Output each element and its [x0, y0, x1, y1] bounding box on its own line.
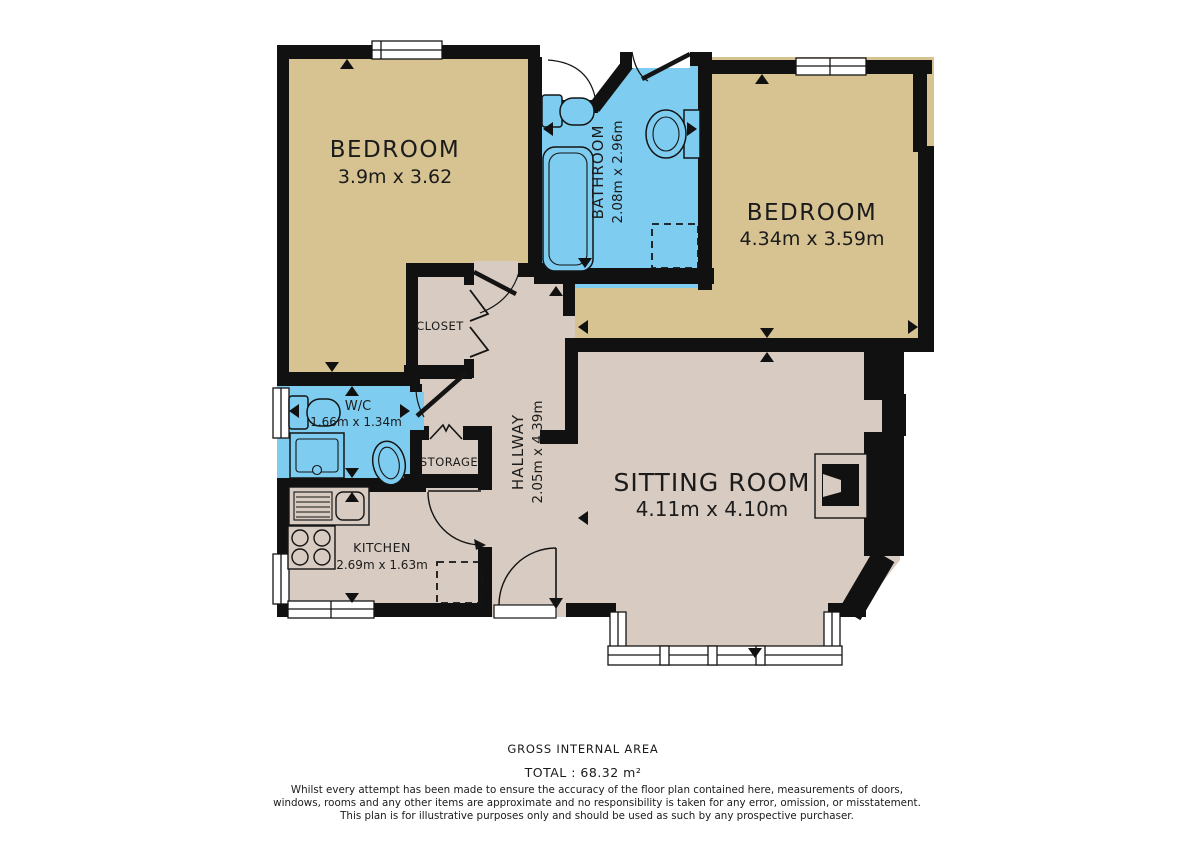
bedroom-1-dims: 3.9m x 3.62: [338, 166, 452, 188]
disclaimer-line-2: windows, rooms and any other items are a…: [273, 797, 921, 809]
sitting-room-label: SITTING ROOM: [613, 468, 810, 497]
bedroom-1-label: BEDROOM: [330, 137, 461, 163]
sitting-room-dims: 4.11m x 4.10m: [636, 497, 789, 521]
stove: [288, 526, 335, 569]
shower: [290, 433, 344, 478]
toilet: [542, 95, 594, 127]
footer: GROSS INTERNAL AREA TOTAL : 68.32 m² Whi…: [273, 742, 921, 822]
fireplace: [815, 454, 867, 518]
disclaimer-line-3: This plan is for illustrative purposes o…: [339, 810, 854, 822]
wc-label: W/C: [345, 399, 371, 414]
total-area: TOTAL : 68.32 m²: [524, 765, 642, 780]
gross-internal-area-label: GROSS INTERNAL AREA: [507, 742, 658, 756]
kitchen-label: KITCHEN: [353, 540, 411, 555]
bedroom-2-label: BEDROOM: [747, 200, 878, 226]
basin: [646, 110, 700, 158]
bathroom-dims: 2.08m x 2.96m: [610, 121, 626, 224]
bedroom-2-dims: 4.34m x 3.59m: [740, 228, 885, 250]
bathtub: [543, 147, 593, 271]
floorplan-page: BEDROOM 3.9m x 3.62 BATHROOM 2.08m x 2.9…: [0, 0, 1200, 848]
disclaimer-line-1: Whilst every attempt has been made to en…: [291, 784, 903, 796]
kitchen-counter: [289, 487, 369, 525]
kitchen-dims: 2.69m x 1.63m: [336, 558, 428, 572]
threshold: [494, 605, 556, 618]
closet-label: CLOSET: [416, 319, 464, 333]
wc-dims: 1.66m x 1.34m: [310, 415, 402, 429]
storage-label: STORAGE: [420, 455, 478, 469]
kitchen-side-window: [273, 554, 289, 604]
bathroom-label: BATHROOM: [589, 125, 607, 220]
kitchen-bottom-window: [288, 601, 374, 618]
hallway-dims: 2.05m x 4.39m: [530, 401, 546, 504]
bedroom-2-window: [796, 58, 866, 75]
wc-window: [273, 388, 289, 438]
floorplan-drawing: BEDROOM 3.9m x 3.62 BATHROOM 2.08m x 2.9…: [0, 0, 1200, 848]
hallway-label: HALLWAY: [509, 414, 527, 490]
bedroom-1-window: [372, 41, 442, 59]
